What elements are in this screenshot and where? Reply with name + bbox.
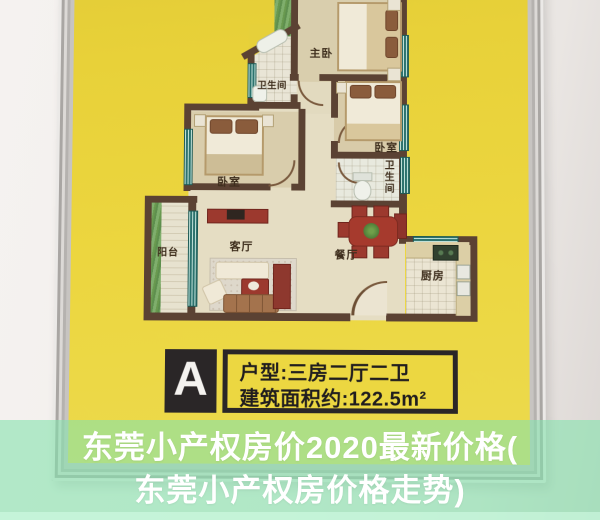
nightstand xyxy=(194,114,206,127)
stove xyxy=(433,245,459,261)
wall-bedroomL-right xyxy=(298,109,305,191)
pillow xyxy=(374,85,396,99)
nightstand xyxy=(262,115,274,128)
badge-letter: A xyxy=(164,349,216,413)
label-dining-room: 餐厅 xyxy=(335,246,359,262)
wall-kitchen-right xyxy=(469,236,477,322)
wall-balconydoor-stub-top xyxy=(188,201,196,211)
window-bathR-right xyxy=(400,157,410,194)
sofa-cream xyxy=(215,262,269,280)
wall-master-left xyxy=(291,0,298,77)
wall-master-bottom-a xyxy=(290,74,299,81)
wall-bathR-bottom xyxy=(331,200,407,207)
coffee-table-plate xyxy=(248,281,259,290)
caption-line-1: 东莞小产权房价2020最新价格( xyxy=(0,426,600,469)
bed-master xyxy=(337,2,402,72)
label-bedroom-left: 卧室 xyxy=(217,174,241,190)
label-balcony: 阳台 xyxy=(157,244,179,259)
label-living-room: 客厅 xyxy=(230,238,254,254)
nightstand xyxy=(336,82,347,94)
bed-bedroom-right xyxy=(345,81,402,141)
kitchen-sink xyxy=(457,265,471,280)
label-master-bedroom: 主卧 xyxy=(310,45,334,61)
kitchen-sink xyxy=(457,281,471,296)
label-bathroom-top: 卫生间 xyxy=(257,78,287,92)
bed-blanket xyxy=(206,154,261,174)
balcony-sliding-door xyxy=(187,211,198,307)
wall-balcony-left xyxy=(144,196,152,317)
pillow xyxy=(385,10,398,31)
bed-blanket xyxy=(347,124,400,140)
tv xyxy=(227,210,245,220)
nightstand xyxy=(387,68,401,82)
sofa-brown xyxy=(223,294,279,313)
wall-bottom-left xyxy=(144,312,351,321)
dining-chair xyxy=(373,246,389,259)
caption-text: 东莞小产权房价2020最新价格( 东莞小产权房价格走势) xyxy=(0,426,600,512)
badge-line2: 建筑面积约:122.5m² xyxy=(239,382,426,412)
badge-letter-box: A xyxy=(164,349,216,413)
badge-text-box: 户型:三房二厅二卫 建筑面积约:122.5m² xyxy=(222,349,458,413)
bed-bedroom-left xyxy=(204,115,264,176)
caption-line-2: 东莞小产权房价格走势) xyxy=(0,469,600,512)
label-bedroom-right: 卧室 xyxy=(374,139,398,155)
cabinet-red xyxy=(273,264,291,309)
wall-corridor-stub xyxy=(291,94,298,106)
caption-overlay: 东莞小产权房价2020最新价格( 东莞小产权房价格走势) xyxy=(0,420,600,520)
label-kitchen: 厨房 xyxy=(421,267,445,283)
pillow xyxy=(350,85,372,99)
pillow xyxy=(385,37,398,58)
wall-bedroomL-top xyxy=(184,104,259,111)
label-bathroom-right: 卫生间 xyxy=(380,160,395,195)
toilet-bowl xyxy=(354,180,372,201)
photo-of-floorplan-poster: 主卧 卫生间 卧室 卫生间 卧室 阳台 客厅 餐厅 厨房 A 户型:三房二厅二卫… xyxy=(0,0,600,520)
window-bedroomL-left xyxy=(184,129,193,185)
nightstand xyxy=(387,0,401,11)
pillow xyxy=(210,119,233,134)
pillow xyxy=(235,119,258,134)
dining-plant xyxy=(363,223,379,239)
